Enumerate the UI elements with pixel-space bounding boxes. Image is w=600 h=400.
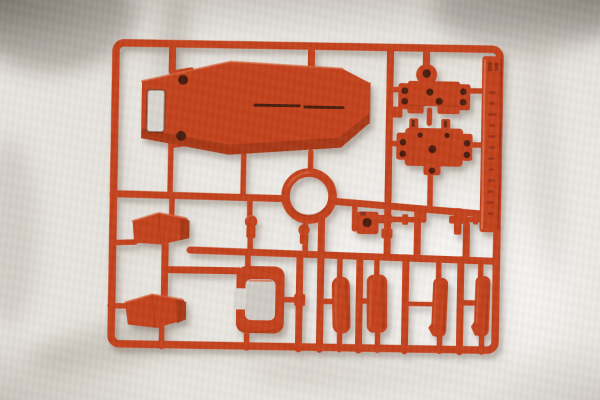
sprue-photo-svg xyxy=(0,0,600,400)
blade-part-4 xyxy=(471,276,491,337)
ring-part xyxy=(285,172,333,220)
runner-tag xyxy=(479,56,503,232)
gate-block xyxy=(381,228,392,238)
blade-part-2 xyxy=(367,275,388,333)
joint-block-top-part xyxy=(398,64,471,115)
gate-block xyxy=(294,294,305,306)
tag-mold-mark xyxy=(495,63,499,71)
hoop-opening-gap xyxy=(234,288,246,309)
pin-long-part xyxy=(391,214,424,225)
tag-mold-mark xyxy=(488,62,493,71)
knob-small-right-part xyxy=(298,224,310,244)
blade-part-3 xyxy=(428,277,449,337)
armor-plate-upper-part xyxy=(132,212,190,244)
photo-model-kit-sprue xyxy=(0,0,600,400)
panel-window-cutout xyxy=(147,90,165,132)
hoop-frame-part xyxy=(234,266,285,334)
main-body-panel-part xyxy=(141,60,371,157)
blade-part-1 xyxy=(332,276,351,333)
armor-plate-lower-part xyxy=(125,294,187,329)
joint-block-bottom-part xyxy=(396,118,473,176)
knob-small-left-part xyxy=(245,215,258,238)
